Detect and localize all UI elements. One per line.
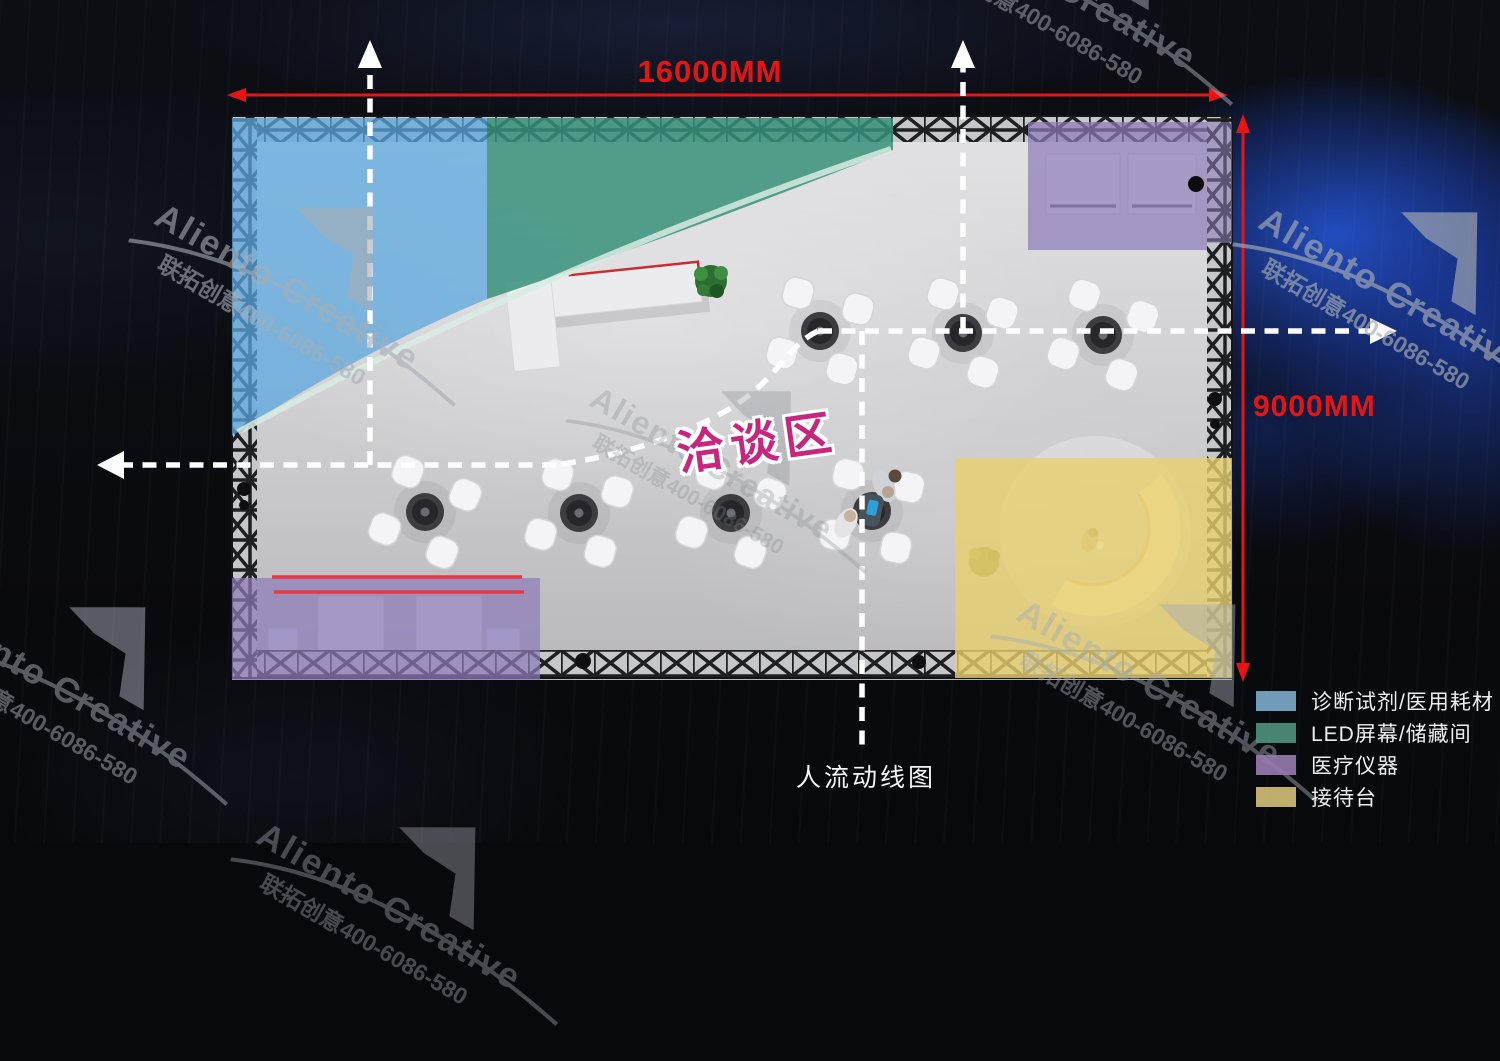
legend-item-equipment: 医疗仪器 bbox=[1256, 754, 1494, 775]
watermark-brand: Aliento Creative bbox=[250, 815, 582, 1030]
legend-swatch-diagnostics bbox=[1256, 691, 1296, 711]
legend-item-diagnostics: 诊断试剂/医用耗材 bbox=[1256, 690, 1494, 711]
legend-item-reception: 接待台 bbox=[1256, 786, 1494, 807]
zone-equipment-truss-tint bbox=[1207, 122, 1232, 243]
legend-label: 接待台 bbox=[1311, 782, 1377, 812]
legend-label: 诊断试剂/医用耗材 bbox=[1311, 686, 1494, 716]
watermark-bottom-partial: Aliento Creative 联拓创意400-6086-580 bbox=[232, 815, 582, 1061]
zone-equipment-top-right bbox=[1028, 122, 1207, 250]
legend-swatch-led-storage bbox=[1256, 723, 1296, 743]
legend-swatch-equipment bbox=[1256, 755, 1296, 775]
dimension-width-line bbox=[227, 88, 1228, 102]
legend-swatch-reception bbox=[1256, 787, 1296, 807]
flow-diagram-label: 人流动线图 bbox=[796, 758, 936, 794]
plant-top bbox=[694, 265, 728, 298]
legend: 诊断试剂/医用耗材 LED屏幕/储藏间 医疗仪器 接待台 bbox=[1256, 690, 1494, 818]
booth-floorplan-page: Aliento Creative 联拓创意400-6086-580 Alient… bbox=[0, 0, 1500, 843]
dimension-width-label: 16000MM bbox=[638, 54, 783, 90]
dimension-height-line bbox=[1236, 114, 1250, 682]
watermark-contact: 联拓创意400-6086-580 bbox=[255, 864, 561, 1060]
legend-label: LED屏幕/储藏间 bbox=[1311, 718, 1472, 748]
legend-label: 医疗仪器 bbox=[1311, 750, 1399, 780]
legend-item-led-storage: LED屏幕/储藏间 bbox=[1256, 722, 1494, 743]
zone-reception bbox=[955, 458, 1232, 678]
dimension-height-label: 9000MM bbox=[1253, 390, 1376, 424]
